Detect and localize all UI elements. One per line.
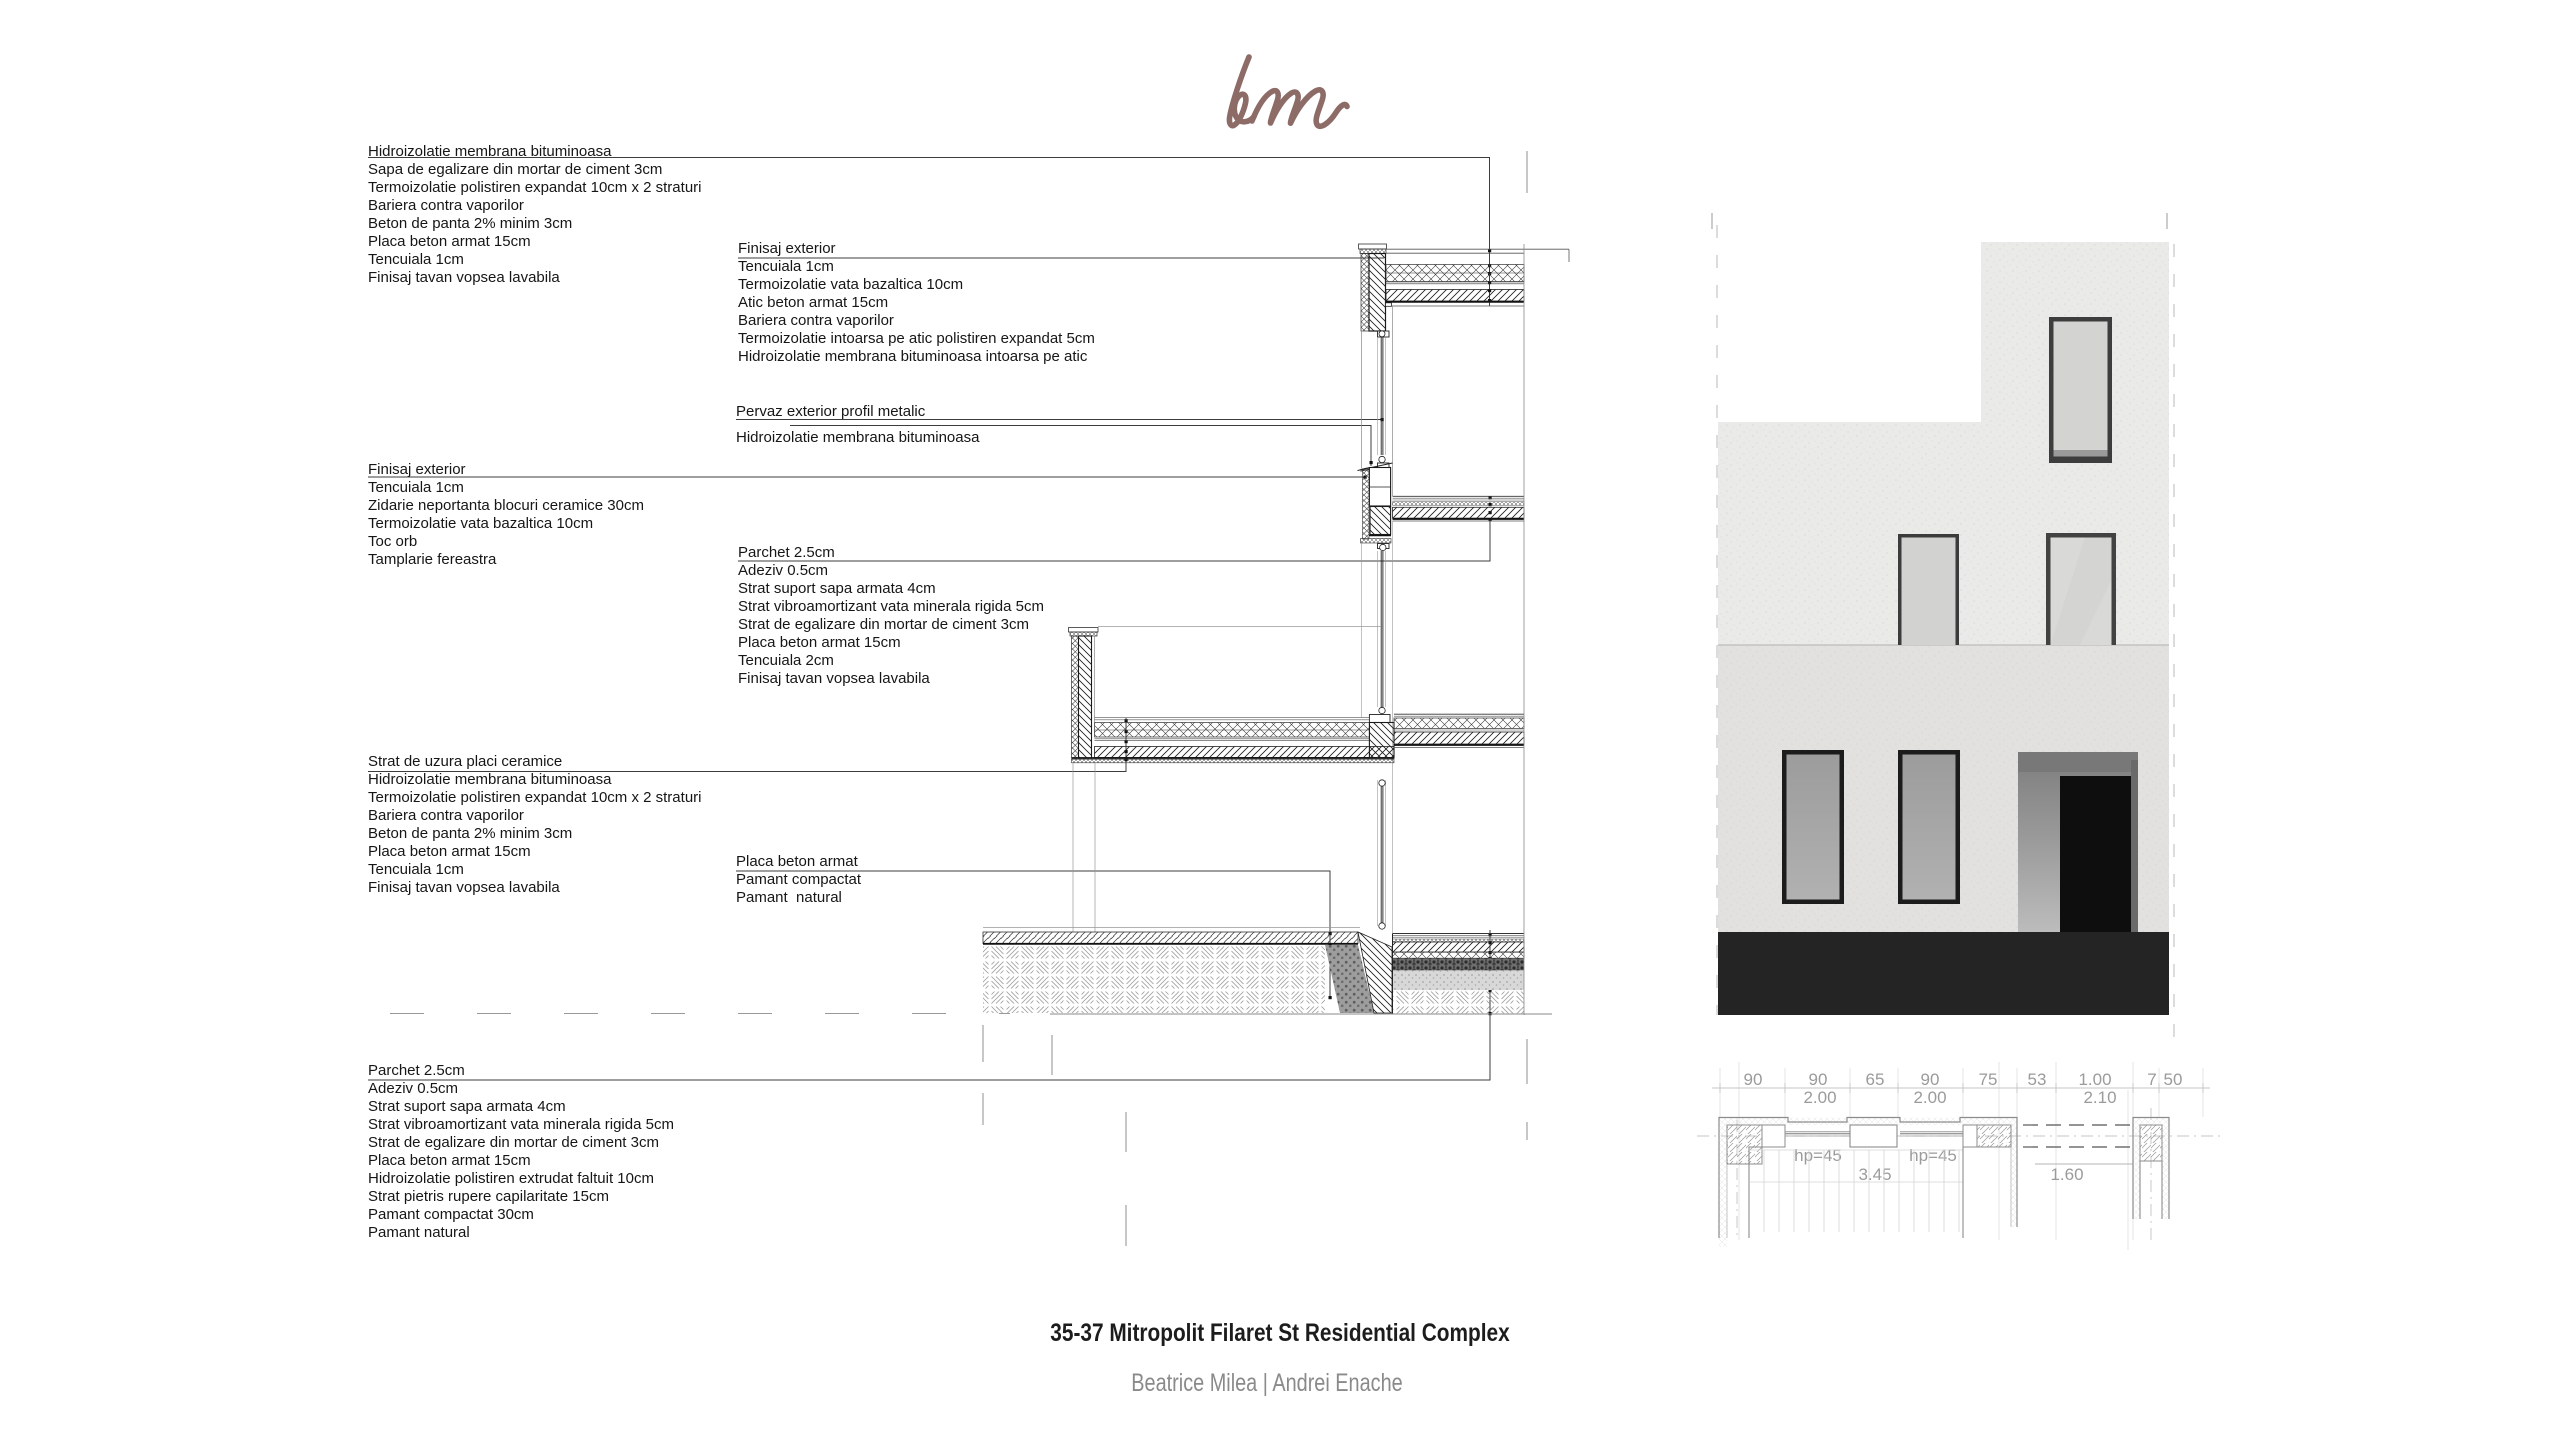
svg-text:75: 75 <box>1979 1070 1998 1089</box>
svg-text:2.10: 2.10 <box>2083 1088 2116 1107</box>
svg-text:90: 90 <box>1921 1070 1940 1089</box>
svg-text:3.45: 3.45 <box>1858 1165 1891 1184</box>
svg-text:hp=45: hp=45 <box>1909 1146 1957 1165</box>
svg-text:7: 7 <box>2147 1070 2156 1089</box>
svg-text:53: 53 <box>2028 1070 2047 1089</box>
svg-text:90: 90 <box>1809 1070 1828 1089</box>
svg-text:65: 65 <box>1866 1070 1885 1089</box>
svg-text:50: 50 <box>2164 1070 2183 1089</box>
svg-text:2.00: 2.00 <box>1913 1088 1946 1107</box>
svg-text:1.60: 1.60 <box>2050 1165 2083 1184</box>
svg-text:2.00: 2.00 <box>1803 1088 1836 1107</box>
svg-text:90: 90 <box>1744 1070 1763 1089</box>
svg-text:1.00: 1.00 <box>2078 1070 2111 1089</box>
svg-text:hp=45: hp=45 <box>1794 1146 1842 1165</box>
